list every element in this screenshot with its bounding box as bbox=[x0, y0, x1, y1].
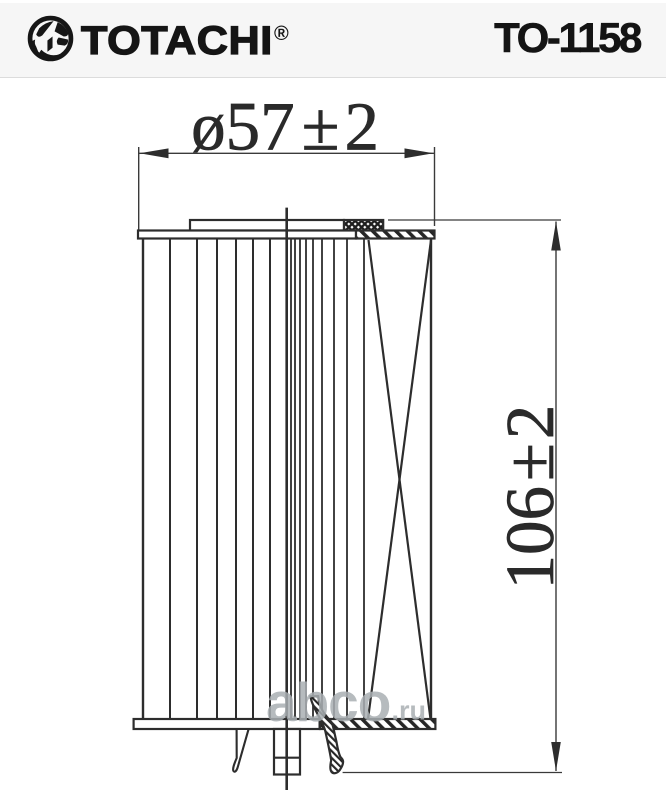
svg-text:.ru: .ru bbox=[392, 696, 427, 726]
svg-text:abco: abco bbox=[266, 671, 390, 733]
svg-text:106±2: 106±2 bbox=[492, 405, 568, 590]
